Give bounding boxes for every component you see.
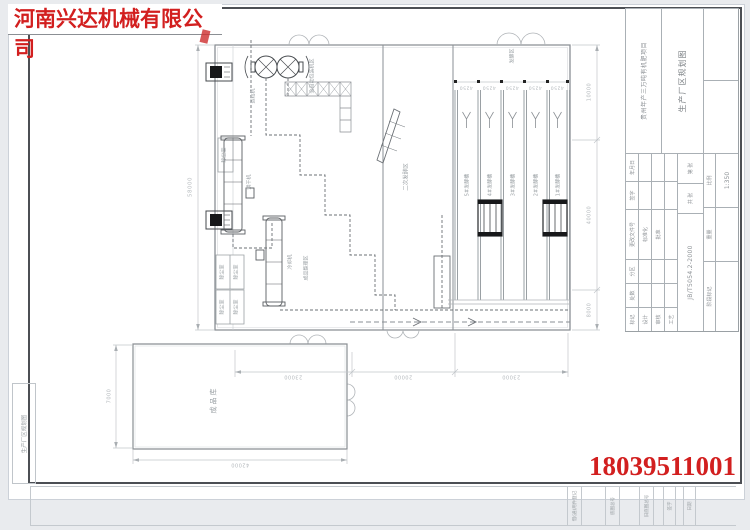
label-fermentation-zone: 发酵区 <box>511 48 516 63</box>
label-dust-room: 除尘室 <box>221 264 226 279</box>
strip-cell-sign: 签字 <box>664 487 676 525</box>
tb-blank <box>651 153 664 181</box>
tb-process: 工艺 <box>664 307 677 331</box>
dim-right-bot: 8000 <box>588 303 593 318</box>
tb-code: JB/T5054.2-2000 <box>677 213 703 331</box>
label-finished-area: 成品整理区 <box>305 255 310 280</box>
tb-blank <box>664 181 677 209</box>
tb-blank <box>638 283 651 307</box>
tb-scale-label: 比例 <box>703 153 715 207</box>
strip-cell-borrow: 借(通)用件登记 <box>568 487 582 525</box>
dim-right-top: 10000 <box>588 83 593 101</box>
strip-blank-cell <box>620 487 640 525</box>
tb-blank <box>703 80 738 153</box>
tb-blank <box>715 261 738 331</box>
tb-blank <box>715 207 738 261</box>
title-block: 标记 处数 分区 更改文件号 签字 年月日 设计 标准化 审核 批准 工艺 <box>625 9 738 332</box>
dim-trough-pitch: 4250 <box>505 84 518 89</box>
tb-blank <box>664 259 677 283</box>
granulator-discs <box>245 56 309 78</box>
label-trough-2: 2#发酵槽 <box>535 174 540 196</box>
dim-bottom-mid: 20000 <box>394 374 412 379</box>
tb-blank <box>651 181 664 209</box>
tb-blank <box>651 259 664 283</box>
tb-blank <box>638 153 651 181</box>
cooler-cylinder <box>256 216 285 306</box>
tb-blank <box>638 259 651 283</box>
label-packing-area: 全自动包装机区 <box>311 58 316 93</box>
tb-drawing-title: 生产厂区规划图 <box>661 8 703 153</box>
tb-blank <box>664 153 677 181</box>
dim-bottom-left: 23000 <box>284 374 302 379</box>
tb-date: 年月日 <box>625 153 638 181</box>
label-cooler: 冷却机 <box>289 254 294 269</box>
strip-blank-cell <box>676 487 684 525</box>
dim-trough-pitch: 4250 <box>459 84 472 89</box>
screenshot-root: 除尘室 除尘室 除尘室 除尘室 除尘室 成品库 二次发酵区 发酵区 成品整理区 … <box>0 0 750 530</box>
strip-cell-date: 日期 <box>684 487 696 525</box>
dim-warehouse-height: 7000 <box>108 389 113 404</box>
conveyor-lines <box>233 40 570 310</box>
tb-approve: 批准 <box>651 209 664 259</box>
strip-text: 日期 <box>687 502 693 511</box>
phone-number: 18039511001 <box>576 451 736 481</box>
strip-text: 签字 <box>667 502 673 511</box>
tb-weight-label: 重量 <box>703 207 715 261</box>
label-dust-room: 除尘室 <box>235 299 240 314</box>
packing-machine-row <box>285 82 351 132</box>
dim-trough-pitch: 4250 <box>528 84 541 89</box>
tb-project-name: 贵州年产三万吨有机肥项目 <box>625 8 661 153</box>
tb-check: 审核 <box>651 307 664 331</box>
tb-standard: 标准化 <box>638 209 651 259</box>
compost-turners <box>478 200 567 236</box>
label-dryer: 烘干机 <box>248 174 253 189</box>
strip-blank-cell <box>582 487 606 525</box>
label-trough-5: 5#发酵槽 <box>466 174 471 196</box>
tb-mark: 标记 <box>625 307 638 331</box>
tb-change-file: 更改文件号 <box>625 209 638 259</box>
tb-stage-label: 阶段标记 <box>703 261 715 331</box>
tb-sign: 签字 <box>625 181 638 209</box>
label-dust-room: 除尘室 <box>221 299 226 314</box>
label-trough-1: 1#发酵槽 <box>557 174 562 196</box>
tb-sheets-page: 第 张 <box>677 153 703 183</box>
label-trough-3: 3#发酵槽 <box>512 174 517 196</box>
company-name-stamp: 河南兴达机械有限公司 <box>8 4 222 35</box>
strip-text: 借(通)用件登记 <box>572 491 578 522</box>
tb-scale-value: 1:350 <box>715 153 738 207</box>
tb-blank <box>664 283 677 307</box>
dust-room-boxes <box>216 138 244 324</box>
dim-trough-pitch: 4250 <box>550 84 563 89</box>
strip-text: 底图总号 <box>610 497 616 515</box>
tb-count: 处数 <box>625 283 638 307</box>
corner-title-box: 生产厂区规划图 <box>12 383 36 484</box>
binding-strip: 借(通)用件登记 底图总号 旧底图总号 签字 日期 <box>30 486 736 526</box>
strip-blank-cell <box>30 487 568 525</box>
label-secondary-fermentation: 二次发酵区 <box>404 163 410 191</box>
tb-zone: 分区 <box>625 259 638 283</box>
warehouse-outline <box>133 344 347 449</box>
corner-title-text: 生产厂区规划图 <box>20 414 28 453</box>
label-dust-room: 除尘室 <box>235 264 240 279</box>
dim-left-total: 58000 <box>188 177 194 197</box>
strip-cell-master-no: 底图总号 <box>606 487 620 525</box>
dim-warehouse-width: 42000 <box>231 462 249 467</box>
label-granulator: 造粒机 <box>252 88 257 103</box>
label-warehouse: 成品库 <box>211 387 218 414</box>
label-dust-room: 除尘室 <box>223 147 228 162</box>
dim-bottom-right: 23000 <box>502 374 520 379</box>
tb-design: 设计 <box>638 307 651 331</box>
bucket-elevator <box>377 109 450 308</box>
dim-right-mid: 40000 <box>588 206 593 224</box>
tb-sheets-total: 共 张 <box>677 183 703 213</box>
tb-blank <box>638 181 651 209</box>
tb-blank <box>664 209 677 259</box>
strip-blank-cell <box>654 487 664 525</box>
strip-blank-cell <box>696 487 736 525</box>
strip-text: 旧底图总号 <box>644 495 650 518</box>
label-trough-4: 4#发酵槽 <box>489 174 494 196</box>
strip-cell-old-master-no: 旧底图总号 <box>640 487 654 525</box>
dim-trough-pitch: 4250 <box>482 84 495 89</box>
tb-blank <box>703 8 738 80</box>
door-arcs <box>289 33 545 416</box>
tb-blank <box>651 283 664 307</box>
